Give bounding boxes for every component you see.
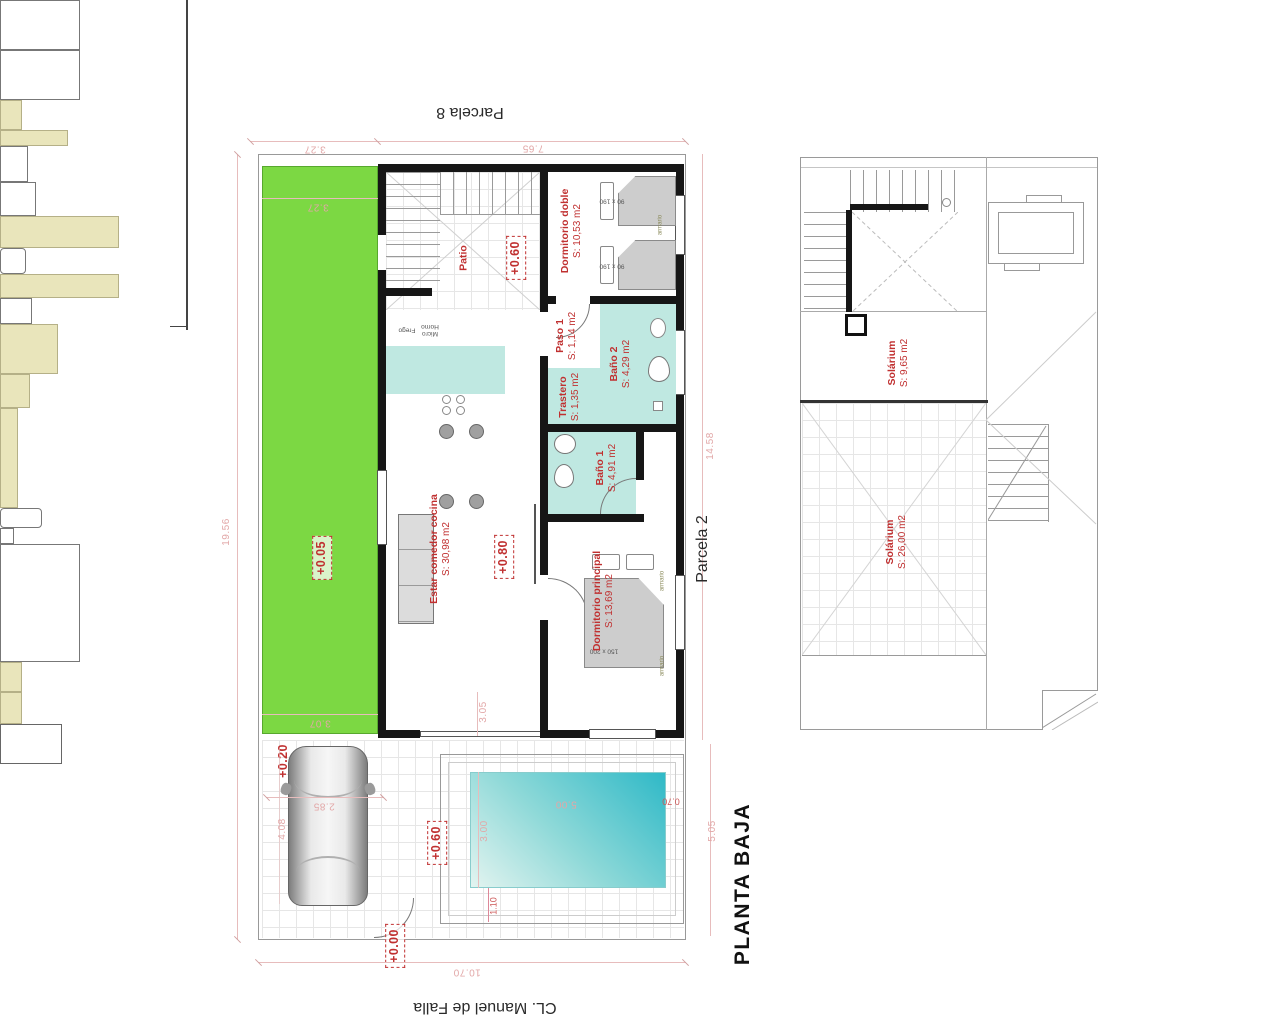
plan-title: PLANTA BAJA [730, 803, 756, 965]
roof-skylight-tab-bottom [1004, 263, 1040, 271]
cooktop-burner [456, 406, 465, 415]
dining-chair [439, 494, 454, 509]
wardrobe-principal-2 [0, 692, 22, 724]
wardrobe-strip [0, 130, 68, 146]
roof-corner-steps [1042, 690, 1098, 730]
staircase-left-run [386, 172, 440, 292]
car [288, 746, 368, 906]
kitchen-island [386, 346, 505, 394]
wall-bottom-1 [548, 730, 590, 738]
wall-core-3 [540, 620, 548, 738]
bano2-toilet [648, 356, 670, 382]
roof-outline-top2 [800, 167, 1098, 168]
wall-bano1-right [636, 432, 644, 480]
tv-screen [534, 504, 536, 584]
window-dorm-principal [675, 575, 685, 650]
bano2-vanity [0, 146, 28, 182]
dim-bottom-width: 10.70 [453, 965, 481, 978]
roof-stair-wall-h [850, 204, 928, 210]
bano1-sink [554, 434, 576, 454]
solarium-2-diagonals [802, 403, 986, 655]
bed-main-pillow [592, 554, 620, 570]
dim-terrace-height: 5.05 [707, 820, 720, 841]
roof-skylight-inner [998, 212, 1074, 254]
staircase-upper-run [440, 172, 540, 214]
room-label-solarium-1: SoláriumS: 9,65 m2 [886, 339, 912, 387]
wall-right-2 [676, 255, 684, 330]
sheet-edge-line [186, 0, 188, 330]
kitchen-sink [0, 248, 26, 274]
roof-stair-newel [942, 198, 951, 207]
dining-table [0, 324, 58, 374]
wall-core-1 [540, 164, 548, 312]
water-heater [0, 528, 14, 544]
dim-line-bottom [258, 962, 686, 963]
bed-double-2 [0, 50, 80, 100]
bed-main [0, 544, 80, 662]
sheet-edge-tick [170, 326, 186, 327]
dim-line-terrace-door [477, 692, 478, 736]
dim-line-left [237, 154, 238, 940]
tv-unit [0, 408, 18, 508]
parcel-top-label: Parcela 8 [436, 102, 504, 122]
window-bano2 [675, 330, 685, 395]
kitchen-counter-bottom [0, 274, 119, 298]
kitchen-counter-top [0, 216, 119, 248]
bed-double-2-pillow [600, 246, 614, 284]
parcel-right-label: Parcela 2 [693, 515, 713, 583]
wall-right-1 [676, 164, 684, 195]
wardrobe-dorm-doble [0, 100, 22, 130]
wall-left-2 [378, 270, 386, 470]
floor-plan-sheet: +0.05 3.27 7.65 3.27 3.07 19.56 14.58 5.… [0, 0, 1280, 1024]
window-living-west [377, 470, 387, 545]
bed-main-pillow [626, 554, 654, 570]
dim-line-pool-height [478, 772, 479, 888]
kitchen-cooktop [0, 298, 32, 324]
wall-left-1 [378, 164, 386, 235]
dim-left-height: 19.56 [221, 518, 234, 546]
bano2-shower [0, 182, 36, 216]
trastero-area [548, 368, 600, 424]
roof-chimney [845, 314, 867, 336]
wall-left-3 [378, 545, 386, 738]
wall-right-3 [676, 395, 684, 575]
roof-void-x [852, 212, 958, 312]
cooktop-burner [442, 406, 451, 415]
coffee-table [0, 374, 30, 408]
dining-chair [469, 424, 484, 439]
cooktop-burner [442, 395, 451, 404]
roof-stair-left-run [804, 212, 850, 312]
wardrobe-principal-1 [0, 662, 22, 692]
bano2-sink [650, 318, 666, 338]
roof-outline-top [800, 157, 1098, 158]
roof-skylight-tab-top [1026, 195, 1062, 203]
dim-line-car-depth [279, 748, 280, 904]
wall-bottom-2 [655, 730, 684, 738]
dim-top-right: 7.65 [522, 141, 543, 154]
dim-top-left: 3.27 [304, 142, 325, 155]
roof-outline-bottom [800, 729, 1043, 730]
dining-chair [439, 424, 454, 439]
wall-core-2 [540, 356, 548, 575]
street-label: CL. Manuel de Falla [413, 997, 556, 1017]
stair-landing-line [440, 214, 540, 215]
bed-double-1 [0, 0, 80, 50]
sliding-door-terrace [420, 731, 548, 737]
entrance-step [0, 724, 62, 764]
bano2-shower-drain [653, 401, 663, 411]
window-bottom [589, 729, 656, 739]
dim-right-height: 14.58 [705, 432, 718, 460]
window-dorm-doble [675, 195, 685, 255]
sofa [398, 514, 434, 624]
dim-line-green-bottom [262, 714, 378, 715]
wall-bano2-bottom [548, 424, 684, 432]
roof-outline-left [800, 157, 801, 730]
roof-lower-inner [802, 655, 986, 656]
cooktop-burner [456, 395, 465, 404]
bano1-bathtub [0, 508, 42, 528]
wall-dorm-doble-1 [548, 296, 556, 304]
dim-line-pool-offset [488, 888, 489, 922]
stair-wall-stub [386, 288, 432, 296]
roof-right-strip-hatch [986, 302, 1098, 528]
pool [470, 772, 666, 888]
wall-bottom-stub [378, 730, 420, 738]
dim-line-terrace-right [710, 744, 711, 936]
bano1-toilet [554, 464, 574, 488]
bed-double-1-pillow [600, 182, 614, 220]
wall-bano1-bottom [548, 514, 644, 522]
dim-line-car-width [266, 797, 384, 798]
dim-line-top [250, 141, 686, 142]
dim-line-green [262, 198, 378, 199]
dim-line-right [702, 154, 703, 740]
wall-right-4 [676, 650, 684, 738]
wall-dorm-doble-2 [590, 296, 684, 304]
wall-top [378, 164, 684, 172]
garden-area [262, 166, 378, 734]
dining-chair [469, 494, 484, 509]
